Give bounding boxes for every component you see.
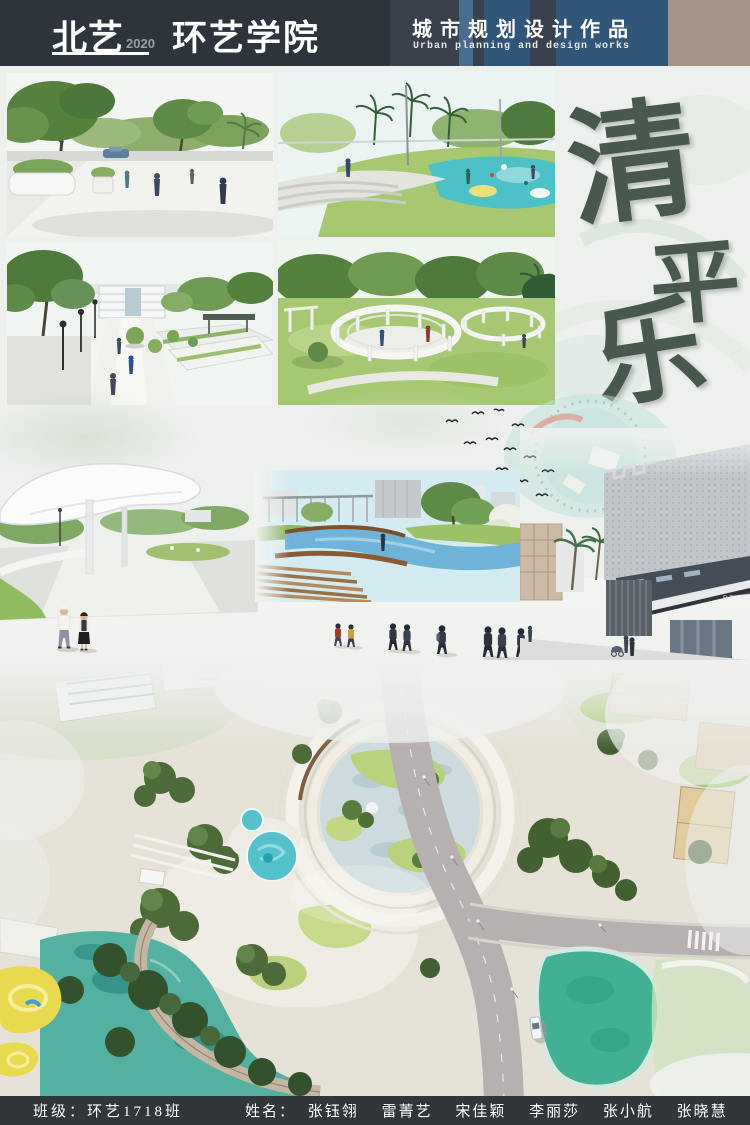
calligraphy-char-qing: 清 xyxy=(561,93,704,236)
student-name-2: 雷菁艺 xyxy=(382,1104,433,1120)
people-silhouettes xyxy=(255,584,555,664)
student-name-3: 宋佳颖 xyxy=(455,1104,506,1120)
person xyxy=(347,624,363,649)
pergola-scene xyxy=(278,240,555,405)
header-bar: 北艺2020 环艺学院 城市规划设计作品 Urban planning and … xyxy=(0,0,750,66)
names-label: 姓名： xyxy=(245,1104,296,1120)
person xyxy=(436,625,457,657)
render-walkway-image xyxy=(7,242,273,405)
aerial-masterplan xyxy=(0,660,750,1096)
poster-title-en: Urban planning and design works xyxy=(413,41,630,52)
building xyxy=(99,286,165,318)
render-pergola-image xyxy=(278,240,555,405)
brand-year: 2020 xyxy=(126,36,155,51)
student-name-5: 张小航 xyxy=(603,1104,654,1120)
footer-bar: 班级：环艺1718班 姓名： 张钰翎 雷菁艺 宋佳颖 李丽莎 张小航 张晓慧 xyxy=(0,1096,750,1125)
elderly-woman-figure xyxy=(78,612,97,653)
plaza-scene xyxy=(7,73,273,237)
canopy-scene xyxy=(0,452,258,665)
render-plaza-image xyxy=(7,73,273,237)
river-terrace-scene xyxy=(255,470,520,602)
retail-street-scene: RETAIL xyxy=(520,428,750,665)
class-label: 班级： xyxy=(33,1104,87,1120)
header-tan-block xyxy=(668,0,750,66)
student-name-6: 张晓慧 xyxy=(677,1104,728,1120)
brand-underline xyxy=(52,52,149,55)
poster-root: 北艺2020 环艺学院 城市规划设计作品 Urban planning and … xyxy=(0,0,750,1125)
render-playground-image xyxy=(278,71,555,237)
entry-gate-grille xyxy=(606,580,652,636)
walkway-scene xyxy=(7,242,273,405)
retail-sign-text: RETAIL xyxy=(723,595,750,602)
names-field: 姓名： 张钰翎 雷菁艺 宋佳颖 李丽莎 张小航 张晓慧 xyxy=(245,1100,745,1121)
playground-scene xyxy=(278,71,555,237)
class-value: 环艺1718班 xyxy=(87,1104,183,1120)
poster-title-zh: 城市规划设计作品 xyxy=(412,13,636,42)
class-field: 班级：环艺1718班 xyxy=(33,1100,183,1121)
college-name: 环艺学院 xyxy=(172,10,320,61)
student-name-1: 张钰翎 xyxy=(308,1104,359,1120)
student-name-4: 李丽莎 xyxy=(529,1104,580,1120)
